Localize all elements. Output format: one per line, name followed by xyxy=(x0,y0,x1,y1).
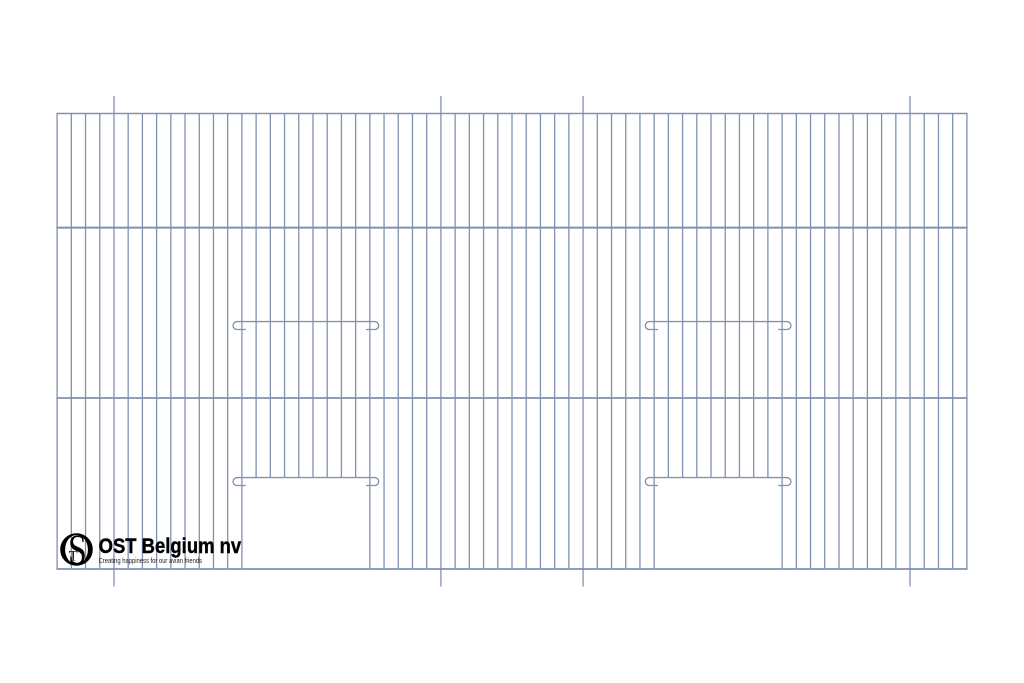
svg-text:Creating happiness for our avi: Creating happiness for our avian friends xyxy=(99,556,203,565)
svg-text:T: T xyxy=(69,548,78,564)
svg-text:OST Belgium nv: OST Belgium nv xyxy=(99,534,242,558)
